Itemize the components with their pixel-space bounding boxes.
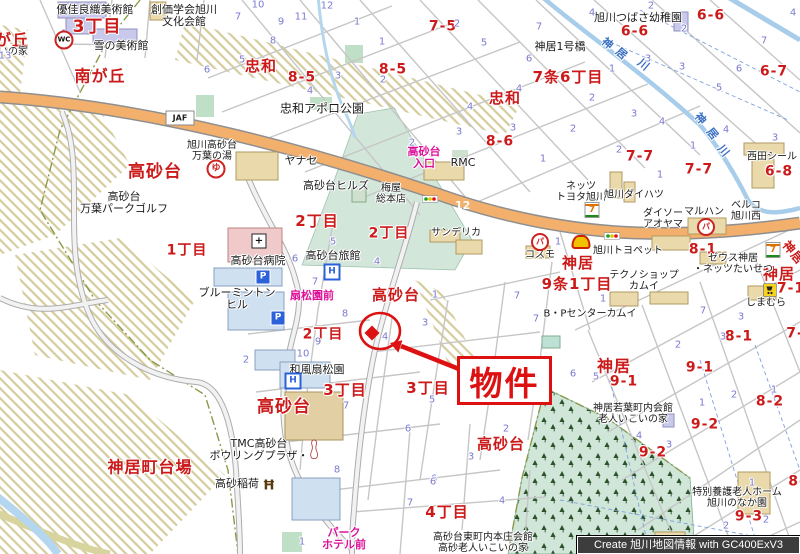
map-canvas[interactable]: が丘3丁目南が丘忠和8-58-57-5忠和7条6丁目6-66-66-78-6高砂… <box>0 0 800 554</box>
map-base-art <box>0 0 800 554</box>
map-credit-bar: Create 旭川地図情報 with GC400ExV3 <box>577 536 800 554</box>
forest-area <box>508 388 695 554</box>
property-callout-label: 物件 <box>470 357 540 405</box>
apollo-park-area <box>310 97 332 110</box>
property-callout: 物件 <box>457 356 552 405</box>
golf-course-area <box>302 108 472 270</box>
